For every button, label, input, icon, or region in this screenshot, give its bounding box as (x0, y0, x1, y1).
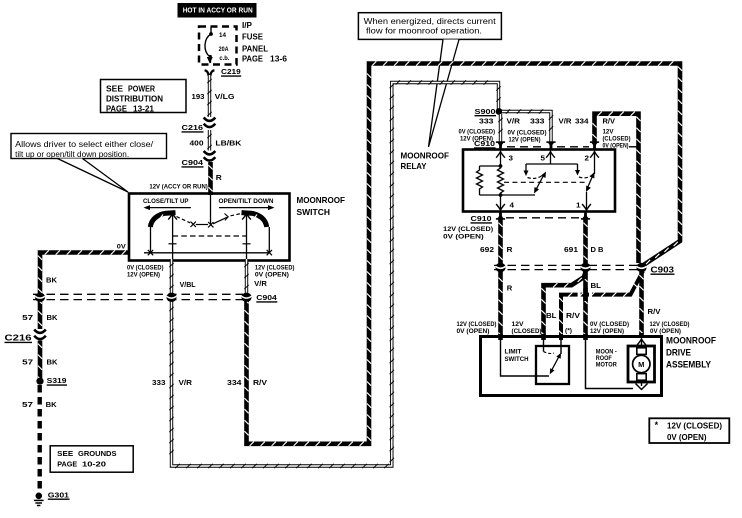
svg-text:MOONROOF: MOONROOF (297, 195, 346, 205)
svg-text:12V (CLOSED): 12V (CLOSED) (667, 420, 722, 430)
svg-text:Allows driver to select either: Allows driver to select either close/ (15, 139, 154, 149)
svg-text:I/P: I/P (242, 21, 252, 30)
svg-text:R/V: R/V (603, 117, 616, 126)
svg-text:0V (OPEN): 0V (OPEN) (457, 328, 490, 335)
svg-text:R: R (216, 173, 223, 182)
svg-text:334: 334 (227, 378, 242, 387)
svg-text:333: 333 (530, 117, 545, 126)
svg-text:SWITCH: SWITCH (505, 356, 529, 363)
svg-text:V/LG: V/LG (215, 92, 235, 101)
svg-text:V/BL: V/BL (180, 280, 196, 289)
svg-text:CLOSE/TILT UP: CLOSE/TILT UP (143, 198, 189, 205)
svg-text:DRIVE: DRIVE (666, 348, 691, 358)
svg-text:POWER: POWER (128, 84, 155, 93)
svg-text:ASSEMBLY: ASSEMBLY (666, 360, 711, 370)
svg-text:flow for moonroof operation.: flow for moonroof operation. (366, 26, 482, 36)
svg-text:V/R: V/R (559, 117, 573, 126)
svg-text:R: R (507, 245, 514, 254)
svg-text:20A: 20A (219, 47, 230, 53)
svg-text:S900: S900 (475, 107, 496, 116)
svg-text:57: 57 (22, 400, 33, 409)
svg-text:FUSE: FUSE (242, 33, 263, 42)
svg-text:V/R: V/R (254, 279, 267, 288)
svg-text:R/V: R/V (648, 307, 661, 316)
svg-text:0V (CLOSED): 0V (CLOSED) (127, 264, 164, 271)
svg-text:193: 193 (192, 92, 205, 101)
svg-text:S319: S319 (47, 376, 67, 385)
svg-text:C910: C910 (474, 139, 495, 148)
svg-text:12V (OPEN): 12V (OPEN) (127, 272, 160, 279)
svg-text:0V: 0V (117, 244, 127, 251)
svg-text:C904: C904 (182, 158, 204, 167)
svg-text:G301: G301 (48, 490, 70, 499)
svg-text:57: 57 (22, 358, 33, 367)
svg-text:333: 333 (479, 117, 494, 126)
svg-text:12V (ACCY OR RUN): 12V (ACCY OR RUN) (149, 183, 207, 190)
svg-text:1: 1 (576, 202, 581, 209)
svg-text:0V (OPEN): 0V (OPEN) (667, 432, 707, 442)
svg-text:HOT IN ACCY OR RUN: HOT IN ACCY OR RUN (183, 8, 253, 15)
svg-text:PANEL: PANEL (242, 44, 268, 53)
svg-text:0V (OPEN): 0V (OPEN) (650, 328, 681, 335)
svg-text:C219: C219 (221, 67, 241, 76)
svg-text:(*): (*) (565, 327, 572, 334)
svg-text:R: R (507, 283, 513, 292)
svg-text:LB/BK: LB/BK (215, 138, 242, 147)
svg-text:(CLOSED): (CLOSED) (512, 328, 542, 335)
svg-text:C216: C216 (5, 334, 33, 343)
svg-text:SWITCH: SWITCH (297, 207, 331, 217)
svg-text:5: 5 (541, 155, 546, 162)
svg-text:*: * (655, 420, 659, 430)
svg-text:OPEN/TILT DOWN: OPEN/TILT DOWN (219, 198, 274, 205)
svg-text:BK: BK (47, 358, 59, 367)
svg-text:3: 3 (509, 155, 514, 162)
svg-text:C216: C216 (182, 123, 204, 132)
svg-text:tilt up or open/tilt down posi: tilt up or open/tilt down position. (15, 149, 129, 159)
svg-text:R/V: R/V (566, 311, 580, 320)
svg-text:691: 691 (564, 245, 578, 254)
svg-text:SEE: SEE (57, 449, 73, 458)
svg-text:c.b.: c.b. (219, 56, 229, 62)
svg-text:V/R: V/R (179, 378, 193, 387)
svg-text:MOTOR: MOTOR (596, 361, 617, 368)
svg-text:LIMIT: LIMIT (505, 349, 522, 356)
svg-text:0V (OPEN): 0V (OPEN) (255, 272, 289, 279)
svg-text:13-21: 13-21 (133, 104, 155, 113)
svg-text:692: 692 (480, 245, 494, 254)
svg-text:SEE: SEE (106, 84, 123, 93)
svg-text:12V: 12V (512, 321, 525, 328)
svg-text:PAGE: PAGE (242, 54, 263, 63)
svg-text:0V (CLOSED): 0V (CLOSED) (590, 321, 629, 328)
svg-text:(CLOSED): (CLOSED) (603, 135, 631, 142)
svg-text:BK: BK (47, 313, 59, 322)
svg-text:BK: BK (46, 400, 58, 409)
svg-text:12V (OPEN): 12V (OPEN) (590, 328, 624, 335)
svg-text:12V (CLOSED): 12V (CLOSED) (457, 321, 497, 328)
svg-text:12V (CLOSED): 12V (CLOSED) (650, 321, 690, 328)
svg-text:12V (OPEN): 12V (OPEN) (509, 136, 541, 143)
svg-text:12V: 12V (603, 128, 615, 135)
svg-text:13-6: 13-6 (270, 54, 288, 63)
svg-text:12V (CLOSED): 12V (CLOSED) (443, 226, 493, 233)
svg-text:V/R: V/R (507, 117, 521, 126)
svg-text:C904: C904 (256, 293, 277, 302)
svg-text:C910: C910 (471, 214, 492, 223)
svg-text:334: 334 (575, 117, 589, 126)
svg-text:RELAY: RELAY (401, 161, 427, 171)
svg-text:M: M (638, 360, 644, 369)
svg-text:D B: D B (591, 245, 605, 254)
svg-text:10-20: 10-20 (82, 460, 106, 469)
svg-text:BL: BL (591, 281, 602, 290)
svg-text:0V (CLOSED): 0V (CLOSED) (508, 129, 547, 136)
svg-text:BL: BL (546, 311, 557, 320)
svg-text:GROUNDS: GROUNDS (78, 449, 117, 458)
svg-text:4: 4 (510, 202, 515, 209)
svg-text:MOONROOF: MOONROOF (666, 336, 717, 346)
svg-text:C903: C903 (651, 265, 675, 274)
svg-text:14: 14 (219, 32, 226, 39)
svg-text:DISTRIBUTION: DISTRIBUTION (106, 94, 163, 103)
svg-text:0V (CLOSED): 0V (CLOSED) (459, 128, 496, 135)
svg-text:333: 333 (152, 378, 166, 387)
svg-text:PAGE: PAGE (106, 104, 127, 113)
svg-text:PAGE: PAGE (57, 460, 77, 469)
svg-text:2: 2 (585, 155, 590, 162)
svg-text:12V (CLOSED): 12V (CLOSED) (255, 264, 295, 271)
svg-text:BK: BK (46, 276, 58, 285)
svg-text:57: 57 (22, 313, 33, 322)
svg-text:0V (OPEN): 0V (OPEN) (443, 234, 484, 241)
svg-text:400: 400 (190, 138, 204, 147)
svg-text:MOONROOF: MOONROOF (401, 150, 449, 160)
svg-text:R/V: R/V (253, 378, 267, 387)
